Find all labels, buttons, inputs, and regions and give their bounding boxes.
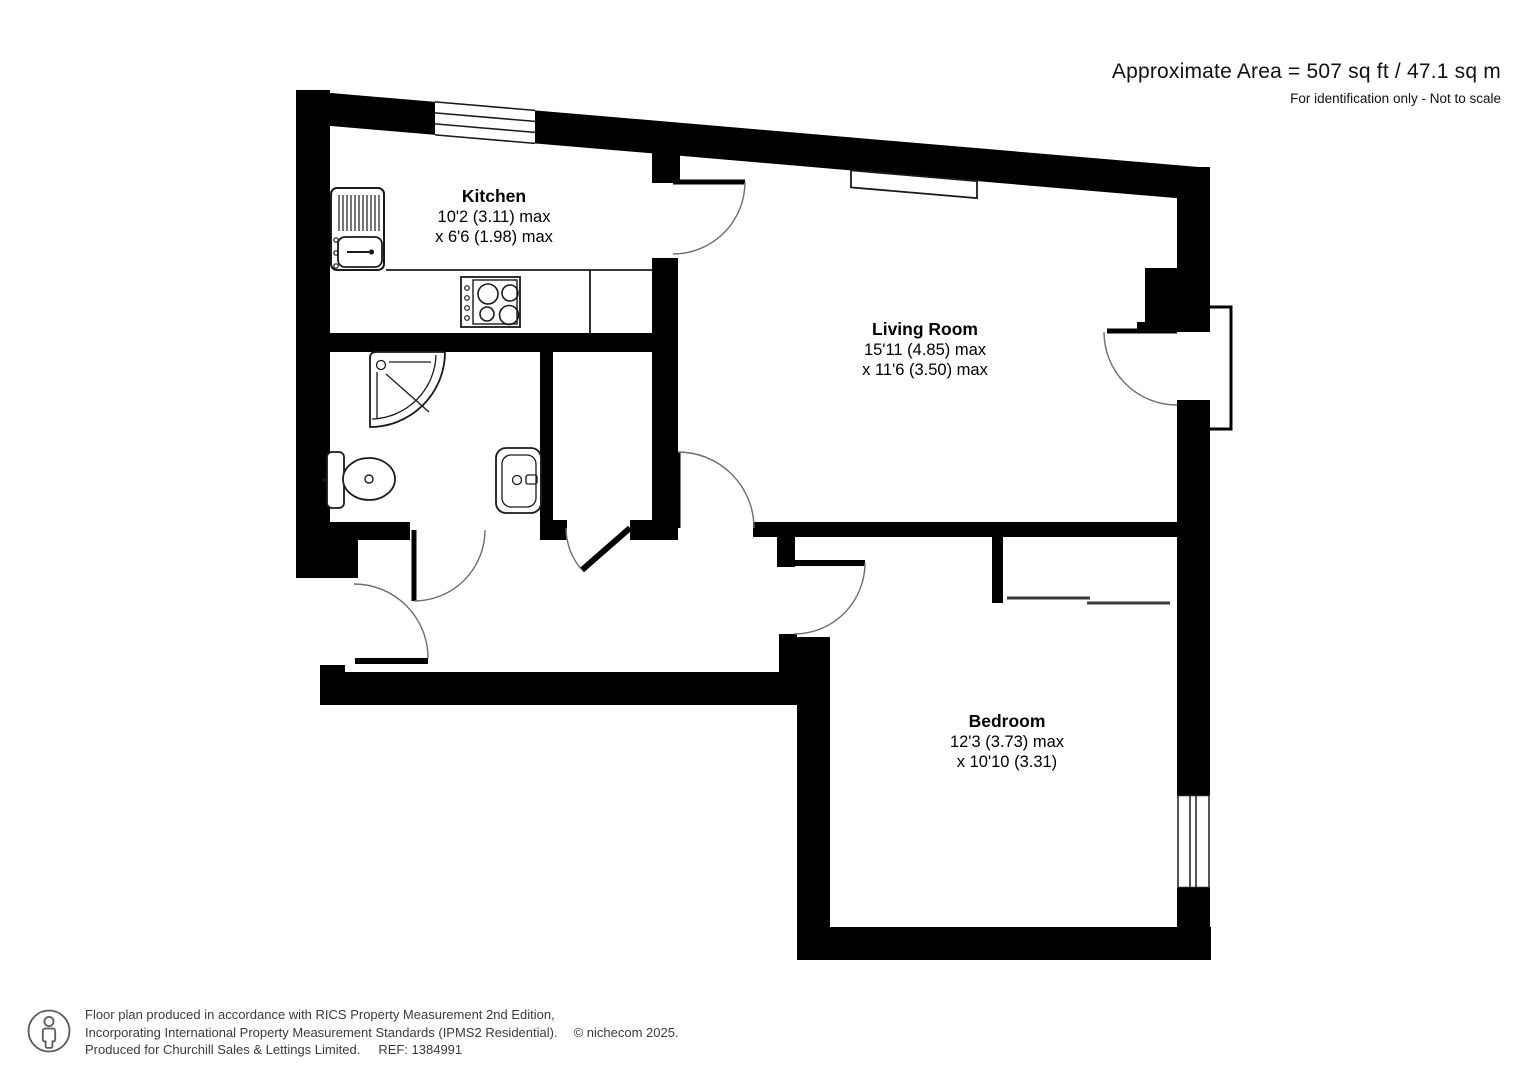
floorplan-page: Approximate Area = 507 sq ft / 47.1 sq m… — [0, 0, 1527, 1080]
footer: Floor plan produced in accordance with R… — [26, 1006, 679, 1059]
basin — [496, 448, 541, 513]
room-label-living-room: Living Room 15'11 (4.85) max x 11'6 (3.5… — [805, 319, 1045, 381]
door-entrance — [354, 584, 428, 661]
wall-living-bottom — [753, 522, 1178, 537]
approximate-area-text: Approximate Area = 507 sq ft / 47.1 sq m — [1112, 60, 1501, 84]
footer-line-1: Floor plan produced in accordance with R… — [85, 1006, 555, 1024]
wall-bathroom-right — [540, 352, 553, 522]
wall-seg-b — [327, 522, 410, 540]
kitchen-dim-2: x 6'6 (1.98) max — [374, 227, 614, 248]
wall-hall-bottom-step — [320, 665, 345, 673]
wall-kitchen-bathroom — [327, 333, 652, 352]
person-logo-icon — [26, 1008, 72, 1054]
kitchen-dim-1: 10'2 (3.11) max — [374, 207, 614, 228]
footer-ref: REF: 1384991 — [378, 1041, 462, 1059]
window-bedroom-right — [1177, 795, 1210, 888]
bedroom-dim-1: 12'3 (3.73) max — [887, 732, 1127, 753]
kitchen-counter — [386, 270, 652, 333]
living-room-dim-1: 15'11 (4.85) max — [805, 340, 1045, 361]
wall-wardrobe-stub — [992, 535, 1003, 603]
door-cupboard — [566, 528, 630, 570]
wall-bedroom-bottom — [797, 927, 1211, 960]
area-summary: Approximate Area = 507 sq ft / 47.1 sq m… — [1112, 60, 1501, 106]
door-kitchen — [673, 182, 745, 254]
wall-jog-bedroom-door — [777, 522, 795, 567]
floorplan-drawing — [0, 0, 1527, 1080]
wardrobe-sliding-doors — [1007, 598, 1170, 603]
room-label-bedroom: Bedroom 12'3 (3.73) max x 10'10 (3.31) — [887, 711, 1127, 773]
living-room-dim-2: x 11'6 (3.50) max — [805, 360, 1045, 381]
toilet — [322, 452, 395, 508]
footer-line-2: Incorporating International Property Mea… — [85, 1024, 558, 1042]
hob — [461, 277, 520, 327]
door-balcony — [1104, 331, 1177, 405]
footer-line-3: Produced for Churchill Sales & Lettings … — [85, 1041, 360, 1059]
kitchen-name: Kitchen — [374, 186, 614, 207]
living-room-name: Living Room — [805, 319, 1045, 340]
shower — [370, 352, 445, 427]
wall-top — [296, 90, 1210, 201]
not-to-scale-text: For identification only - Not to scale — [1112, 91, 1501, 106]
footer-copyright: © nichecom 2025. — [574, 1024, 679, 1042]
bedroom-name: Bedroom — [887, 711, 1127, 732]
door-living-room — [678, 452, 754, 528]
wall-divider-lower — [652, 258, 678, 522]
window-kitchen-top — [435, 101, 535, 144]
footer-text: Floor plan produced in accordance with R… — [85, 1006, 679, 1059]
door-bedroom — [794, 563, 865, 634]
balcony-recess-outline — [1210, 307, 1231, 429]
wall-hall-bottom — [320, 672, 802, 705]
wall-seg-c — [630, 520, 678, 540]
wall-right-upper-step — [1145, 268, 1177, 332]
drainer-lines — [339, 195, 379, 231]
wall-seg-a — [540, 520, 567, 540]
wall-left — [296, 90, 330, 560]
hob-controls — [465, 286, 470, 321]
wall-divider-upper — [652, 150, 680, 183]
bedroom-dim-2: x 10'10 (3.31) — [887, 752, 1127, 773]
sink-tap — [347, 249, 374, 254]
room-label-kitchen: Kitchen 10'2 (3.11) max x 6'6 (1.98) max — [374, 186, 614, 248]
door-bathroom — [414, 530, 485, 601]
wall-right-upper — [1177, 167, 1210, 332]
